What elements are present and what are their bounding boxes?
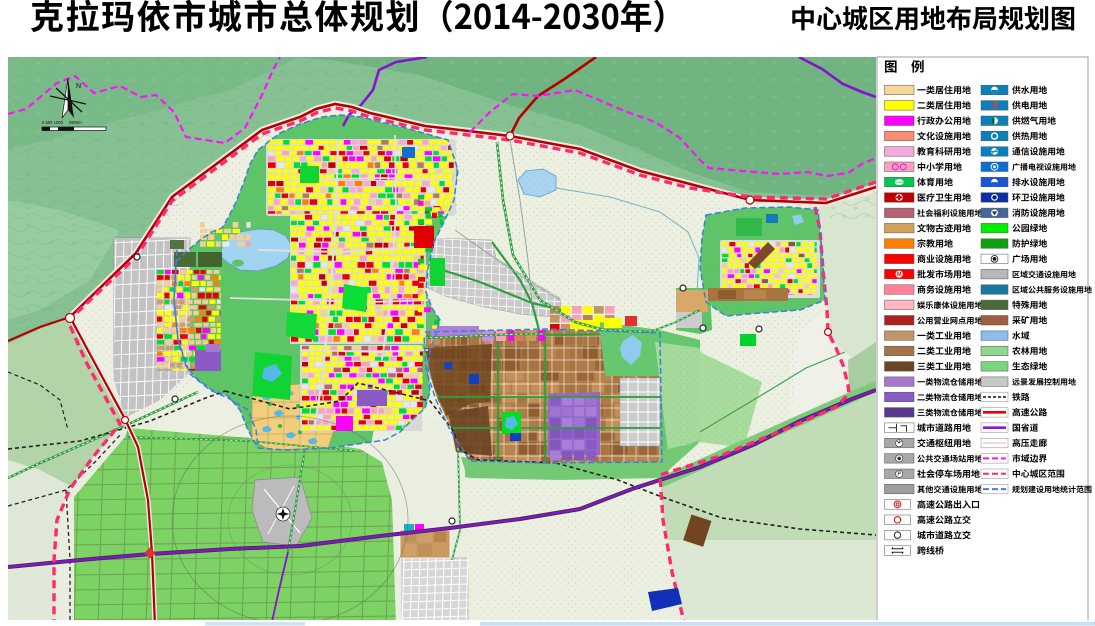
svg-text:0 500 1000 2500m: 0 500 1000 2500m [42, 120, 82, 125]
svg-text:N: N [76, 83, 81, 90]
svg-text:M: M [897, 272, 902, 278]
